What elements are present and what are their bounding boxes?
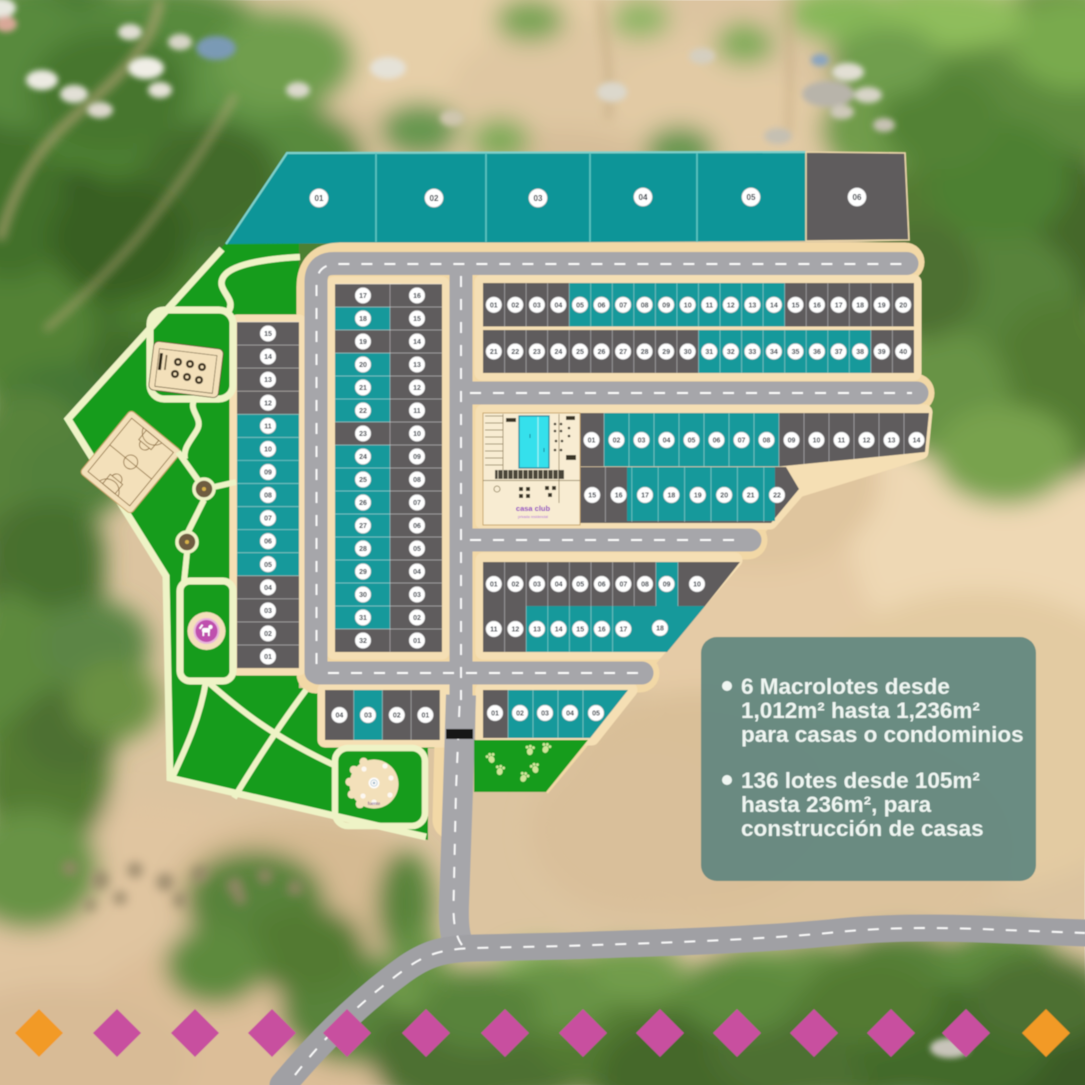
svg-text:32: 32	[727, 349, 735, 356]
svg-text:04: 04	[336, 713, 344, 720]
svg-text:23: 23	[359, 431, 367, 438]
svg-text:27: 27	[619, 349, 627, 356]
svg-text:33: 33	[749, 349, 757, 356]
svg-text:31: 31	[705, 349, 713, 356]
svg-text:21: 21	[747, 493, 755, 500]
svg-text:12: 12	[727, 302, 735, 309]
svg-text:29: 29	[662, 349, 670, 356]
svg-text:07: 07	[738, 438, 746, 445]
svg-text:03: 03	[541, 711, 549, 718]
svg-text:1,012m² hasta 1,236m²: 1,012m² hasta 1,236m²	[741, 698, 980, 723]
svg-text:08: 08	[641, 302, 649, 309]
svg-text:01: 01	[315, 194, 324, 203]
svg-text:06: 06	[713, 438, 721, 445]
svg-text:hasta 236m², para: hasta 236m², para	[741, 792, 932, 817]
svg-text:03: 03	[413, 592, 421, 599]
svg-text:10: 10	[693, 582, 701, 589]
svg-text:05: 05	[413, 546, 421, 553]
svg-text:23: 23	[533, 349, 541, 356]
svg-text:14: 14	[413, 339, 421, 346]
svg-text:15: 15	[588, 493, 596, 500]
svg-text:fuente: fuente	[368, 801, 381, 806]
svg-text:04: 04	[566, 711, 574, 718]
svg-text:11: 11	[838, 438, 846, 445]
svg-text:14: 14	[913, 438, 921, 445]
svg-text:privada residencial: privada residencial	[518, 515, 548, 519]
svg-text:01: 01	[264, 654, 272, 661]
svg-text:12: 12	[512, 627, 520, 634]
svg-text:29: 29	[359, 569, 367, 576]
svg-text:03: 03	[533, 582, 541, 589]
svg-text:04: 04	[264, 585, 272, 592]
svg-text:16: 16	[615, 493, 623, 500]
svg-text:136 lotes desde 105m²: 136 lotes desde 105m²	[741, 768, 980, 793]
svg-text:05: 05	[264, 562, 272, 569]
svg-text:02: 02	[393, 713, 401, 720]
svg-text:16: 16	[813, 302, 821, 309]
svg-text:38: 38	[856, 349, 864, 356]
svg-text:06: 06	[413, 523, 421, 530]
svg-text:26: 26	[598, 349, 606, 356]
svg-text:13: 13	[264, 377, 272, 384]
svg-text:15: 15	[413, 316, 421, 323]
svg-text:03: 03	[638, 438, 646, 445]
svg-text:27: 27	[359, 523, 367, 530]
svg-text:02: 02	[264, 631, 272, 638]
svg-text:10: 10	[684, 302, 692, 309]
svg-text:03: 03	[264, 608, 272, 615]
svg-text:01: 01	[422, 713, 430, 720]
svg-text:12: 12	[863, 438, 871, 445]
svg-text:10: 10	[264, 446, 272, 453]
svg-text:01: 01	[588, 438, 596, 445]
svg-text:10: 10	[813, 438, 821, 445]
svg-text:32: 32	[359, 638, 367, 645]
svg-text:02: 02	[613, 438, 621, 445]
svg-text:19: 19	[359, 339, 367, 346]
svg-text:07: 07	[619, 302, 627, 309]
svg-text:01: 01	[490, 582, 498, 589]
svg-text:26: 26	[359, 500, 367, 507]
svg-text:30: 30	[684, 349, 692, 356]
svg-text:05: 05	[576, 302, 584, 309]
svg-text:21: 21	[490, 349, 498, 356]
svg-text:25: 25	[576, 349, 584, 356]
svg-text:21: 21	[359, 385, 367, 392]
svg-text:04: 04	[663, 438, 671, 445]
svg-text:08: 08	[641, 582, 649, 589]
svg-text:24: 24	[359, 454, 367, 461]
svg-text:22: 22	[359, 408, 367, 415]
svg-text:03: 03	[534, 194, 543, 203]
svg-text:18: 18	[359, 316, 367, 323]
svg-text:10: 10	[413, 431, 421, 438]
svg-text:14: 14	[770, 302, 778, 309]
svg-text:15: 15	[264, 331, 272, 338]
svg-text:35: 35	[792, 349, 800, 356]
svg-text:06: 06	[598, 582, 606, 589]
svg-text:20: 20	[720, 493, 728, 500]
svg-text:06: 06	[598, 302, 606, 309]
svg-text:12: 12	[413, 385, 421, 392]
svg-text:17: 17	[620, 627, 628, 634]
svg-text:construcción de casas: construcción de casas	[741, 816, 984, 841]
svg-text:04: 04	[555, 302, 563, 309]
svg-text:13: 13	[888, 438, 896, 445]
svg-text:14: 14	[264, 354, 272, 361]
svg-text:13: 13	[749, 302, 757, 309]
svg-text:02: 02	[430, 194, 439, 203]
svg-text:17: 17	[359, 293, 367, 300]
svg-text:08: 08	[763, 438, 771, 445]
svg-text:01: 01	[490, 302, 498, 309]
svg-text:28: 28	[641, 349, 649, 356]
svg-text:02: 02	[511, 302, 519, 309]
svg-text:03: 03	[533, 302, 541, 309]
svg-text:02: 02	[413, 615, 421, 622]
svg-text:16: 16	[413, 293, 421, 300]
svg-text:22: 22	[511, 349, 519, 356]
svg-text:09: 09	[264, 470, 272, 477]
svg-text:casa club: casa club	[516, 504, 551, 513]
svg-text:18: 18	[668, 493, 676, 500]
svg-text:18: 18	[856, 302, 864, 309]
svg-text:17: 17	[835, 302, 843, 309]
svg-text:13: 13	[533, 627, 541, 634]
svg-text:6 Macrolotes desde: 6 Macrolotes desde	[741, 674, 950, 699]
svg-text:13: 13	[413, 362, 421, 369]
svg-text:06: 06	[264, 539, 272, 546]
svg-text:20: 20	[899, 302, 907, 309]
svg-text:03: 03	[364, 713, 372, 720]
svg-text:30: 30	[359, 592, 367, 599]
svg-text:19: 19	[878, 302, 886, 309]
svg-text:17: 17	[641, 493, 649, 500]
svg-text:07: 07	[620, 582, 628, 589]
svg-text:25: 25	[359, 477, 367, 484]
svg-text:07: 07	[413, 500, 421, 507]
svg-text:15: 15	[792, 302, 800, 309]
svg-text:11: 11	[490, 627, 498, 634]
svg-text:02: 02	[512, 582, 520, 589]
svg-text:22: 22	[773, 493, 781, 500]
svg-text:07: 07	[264, 516, 272, 523]
svg-text:05: 05	[576, 582, 584, 589]
svg-text:12: 12	[264, 400, 272, 407]
svg-text:31: 31	[359, 615, 367, 622]
svg-text:08: 08	[264, 493, 272, 500]
svg-text:05: 05	[592, 711, 600, 718]
svg-text:01: 01	[413, 638, 421, 645]
svg-text:06: 06	[853, 193, 862, 202]
svg-text:05: 05	[688, 438, 696, 445]
svg-text:18: 18	[656, 626, 664, 633]
svg-text:16: 16	[598, 627, 606, 634]
svg-text:04: 04	[413, 569, 421, 576]
svg-text:20: 20	[359, 362, 367, 369]
svg-text:09: 09	[663, 582, 671, 589]
svg-text:37: 37	[835, 349, 843, 356]
svg-text:02: 02	[516, 711, 524, 718]
svg-text:14: 14	[555, 627, 563, 634]
svg-text:40: 40	[899, 349, 907, 356]
svg-text:04: 04	[555, 582, 563, 589]
svg-text:09: 09	[662, 302, 670, 309]
svg-text:para casas o condominios: para casas o condominios	[741, 722, 1024, 747]
svg-text:24: 24	[555, 349, 563, 356]
svg-text:11: 11	[413, 408, 421, 415]
svg-text:01: 01	[491, 711, 499, 718]
svg-text:34: 34	[770, 349, 778, 356]
svg-text:09: 09	[788, 438, 796, 445]
svg-text:11: 11	[706, 302, 714, 309]
svg-text:11: 11	[264, 423, 272, 430]
svg-text:08: 08	[413, 477, 421, 484]
svg-text:19: 19	[694, 493, 702, 500]
svg-text:39: 39	[878, 349, 886, 356]
svg-text:05: 05	[747, 193, 756, 202]
svg-text:36: 36	[813, 349, 821, 356]
svg-text:09: 09	[413, 454, 421, 461]
svg-text:04: 04	[639, 193, 648, 202]
svg-text:28: 28	[359, 546, 367, 553]
svg-text:15: 15	[576, 627, 584, 634]
